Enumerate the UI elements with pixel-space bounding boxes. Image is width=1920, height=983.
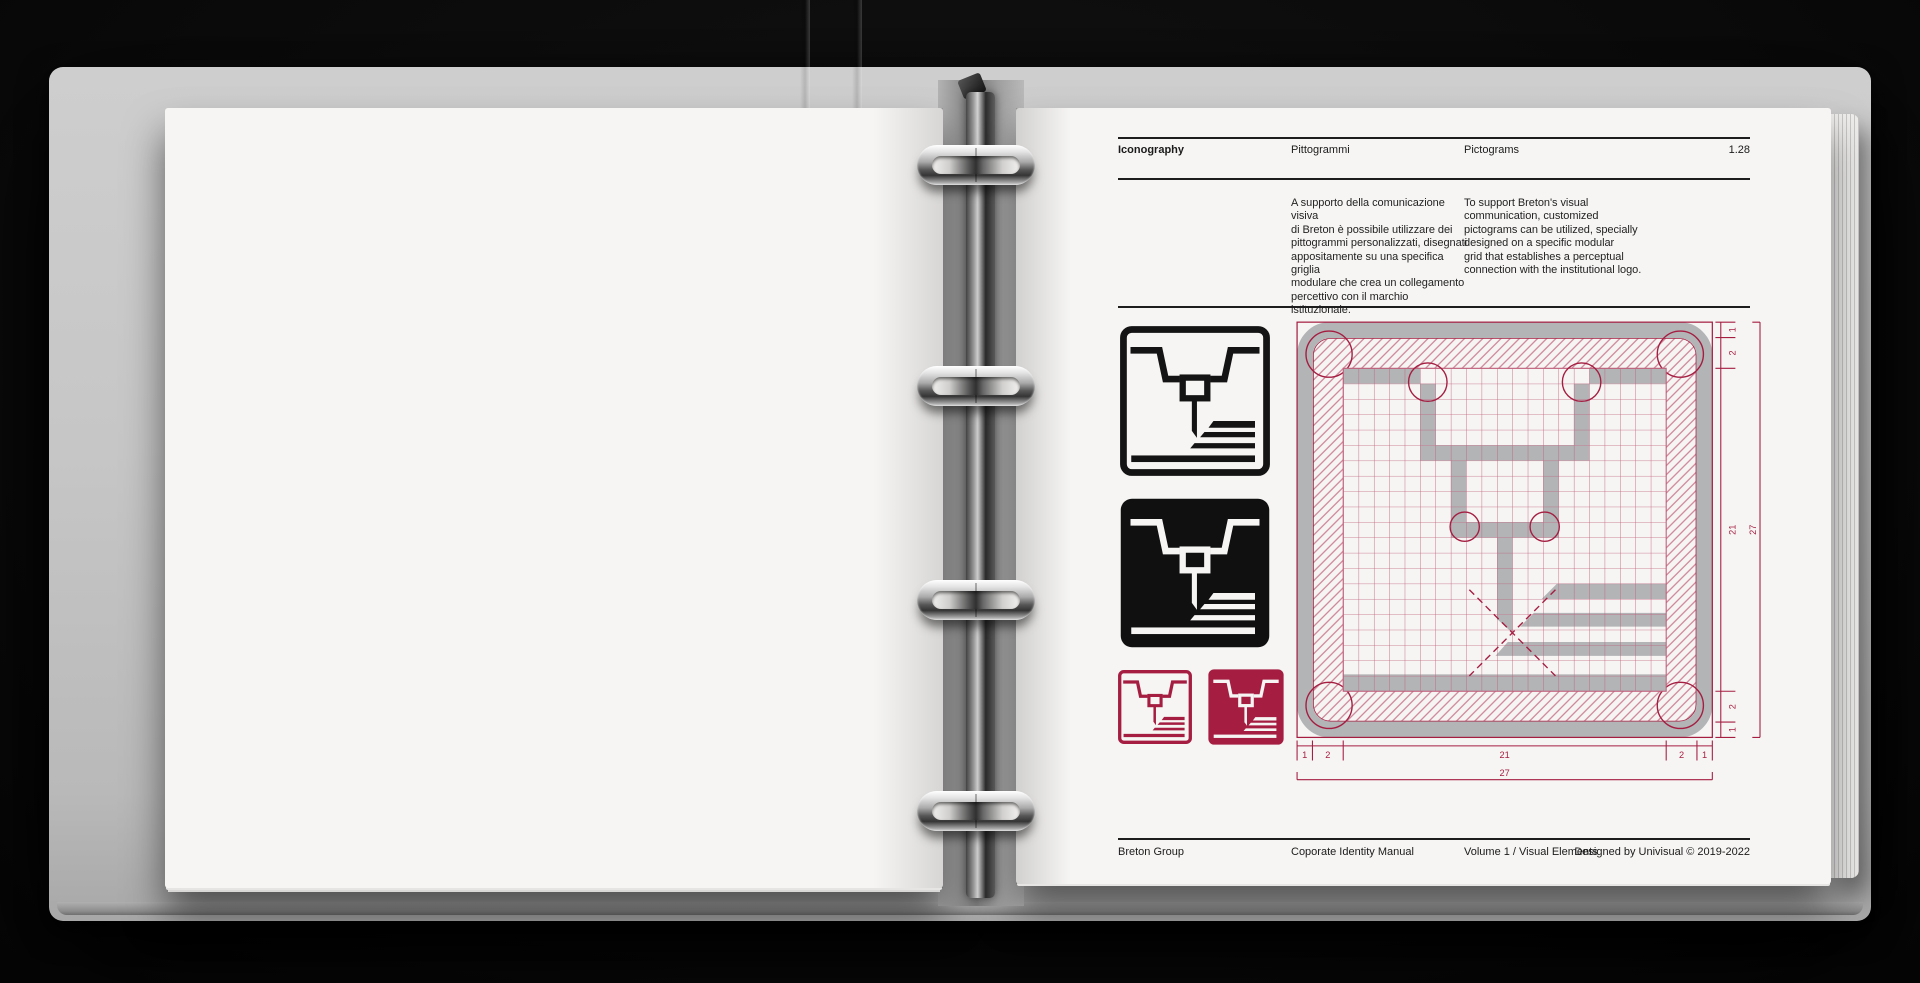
footer-manual-title: Coporate Identity Manual [1291, 846, 1414, 858]
dimension-total-label: 27 [1500, 768, 1510, 778]
page-subtitle-italian: Pittogrammi [1291, 144, 1350, 156]
dimension-label: 2 [1679, 750, 1684, 760]
pictogram-construction-grid: 1 2 21 2 1 27 1 2 21 2 [1294, 319, 1780, 799]
binder-ring [917, 366, 1035, 406]
right-page: Iconography Pittogrammi Pictograms 1.28 … [1016, 108, 1831, 884]
cnc-machine-pictogram [1123, 682, 1187, 737]
binder-ring [917, 145, 1035, 185]
header-rule-top [1118, 137, 1750, 139]
dimension-label: 2 [1727, 350, 1737, 355]
dimension-label: 1 [1727, 327, 1737, 332]
pictogram-solid-black [1120, 498, 1270, 648]
dimension-label: 21 [1727, 525, 1737, 535]
binder-ring [917, 580, 1035, 620]
page-number: 1.28 [1729, 144, 1750, 156]
dimension-label: 2 [1325, 750, 1330, 760]
intro-paragraph-italian: A supporto della comunicazione visiva di… [1291, 197, 1469, 318]
page-subtitle-english: Pictograms [1464, 144, 1519, 156]
pictogram-outline-red [1118, 670, 1192, 744]
pictogram-outline-black [1120, 326, 1270, 476]
pictogram-solid-red [1208, 669, 1284, 745]
manual-page: Iconography Pittogrammi Pictograms 1.28 … [1016, 108, 1831, 884]
right-page-stack-edges [1831, 114, 1859, 878]
footer-company: Breton Group [1118, 846, 1184, 858]
dimension-total-label: 27 [1748, 525, 1758, 535]
dimension-label: 1 [1702, 750, 1707, 760]
dimension-label: 21 [1500, 750, 1510, 760]
cnc-machine-pictogram [1131, 350, 1260, 462]
footer-credit: Designed by Univisual © 2019-2022 [1574, 846, 1750, 858]
dimension-label: 1 [1727, 727, 1737, 732]
dimension-label: 2 [1727, 704, 1737, 709]
header-rule-bottom [1118, 178, 1750, 180]
left-page-blank [165, 108, 943, 888]
module-grid [1343, 368, 1666, 691]
dimension-label: 1 [1302, 750, 1307, 760]
section-rule [1118, 306, 1750, 308]
binder-ring [917, 791, 1035, 831]
dimension-labels-right: 1 2 21 2 1 27 [1727, 327, 1758, 732]
binder-photo-scene: Iconography Pittogrammi Pictograms 1.28 … [0, 0, 1920, 983]
binder-spine-bar [966, 92, 995, 898]
intro-paragraph-english: To support Breton's visual communication… [1464, 197, 1642, 277]
footer-rule [1118, 838, 1750, 840]
page-title: Iconography [1118, 144, 1184, 156]
dimension-labels-bottom: 1 2 21 2 1 27 [1302, 750, 1707, 778]
